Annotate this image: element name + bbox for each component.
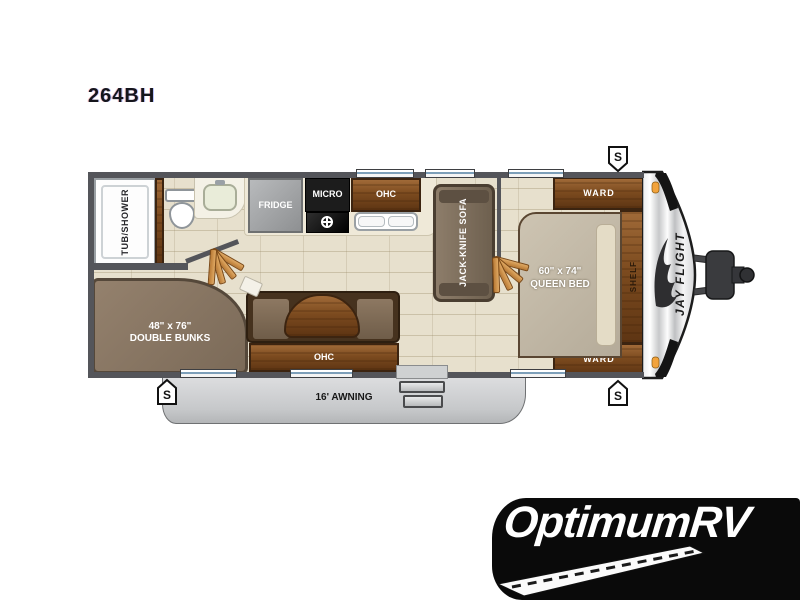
window-bunk (180, 369, 237, 378)
faucet-icon (215, 180, 225, 185)
ward-top-label: WARD (583, 188, 615, 199)
bunks-label: 48" x 76" DOUBLE BUNKS (130, 321, 211, 346)
burner-icon (321, 216, 333, 228)
wardrobe-top: WARD (553, 177, 645, 210)
dealer-logo-text: OptimumRV (501, 498, 796, 548)
svg-text:S: S (163, 388, 171, 402)
svg-text:S: S (614, 389, 622, 403)
road-icon (498, 544, 728, 598)
speaker-badge-top: S (607, 145, 629, 173)
kitchen-ohc-label: OHC (376, 189, 396, 200)
window-dinette (290, 369, 353, 378)
dinette-seat-right (357, 299, 393, 339)
tub-shower-label: TUB/SHOWER (120, 189, 130, 256)
dinette-ohc: OHC (249, 343, 399, 372)
wall-left (88, 172, 94, 378)
fridge: FRIDGE (248, 178, 303, 233)
entry-step-2 (403, 395, 443, 408)
queen-bed-label: 60" x 74" QUEEN BED (520, 266, 600, 291)
micro-label: MICRO (313, 189, 343, 200)
awning-label: 16' AWNING (163, 392, 525, 403)
bedroom-wall (497, 178, 501, 258)
floorplan-image: 264BH TUB/SHOWER FRIDGE MICRO OHC JACK-K… (0, 0, 800, 600)
kitchen-ohc: OHC (351, 178, 421, 212)
bath-sink-icon (203, 184, 237, 211)
kitchen-sink-icon (354, 212, 418, 231)
dealer-logo: OptimumRV (488, 490, 800, 600)
bath-trim (155, 178, 164, 266)
hitch-icon (694, 246, 756, 304)
double-bunks: 48" x 76" DOUBLE BUNKS (92, 278, 248, 374)
fridge-label: FRIDGE (258, 200, 292, 211)
microwave: MICRO (305, 178, 350, 212)
speaker-badge-left: S (156, 378, 178, 406)
awning: 16' AWNING (162, 378, 526, 424)
entry-step-1 (399, 381, 445, 393)
model-number: 264BH (88, 85, 155, 108)
svg-text:S: S (614, 150, 622, 164)
marker-light-icon (652, 357, 659, 368)
window-bed-top (508, 169, 564, 178)
window-kitchen (356, 169, 414, 178)
tub-shower: TUB/SHOWER (94, 178, 156, 266)
window-bed-bottom (510, 369, 566, 378)
entry-platform (396, 365, 448, 379)
dinette-ohc-label: OHC (314, 352, 334, 363)
shelf-label: SHELF (629, 261, 638, 292)
queen-bed: 60" x 74" QUEEN BED (518, 212, 622, 358)
marker-light-icon (652, 182, 659, 193)
window-sofa (425, 169, 475, 178)
bathroom-wall (88, 263, 188, 270)
range-cooktop (306, 212, 349, 233)
speaker-badge-right: S (607, 379, 629, 407)
jayflight-logo: JAY FLIGHT (673, 232, 687, 316)
jack-knife-sofa: JACK-KNIFE SOFA (433, 184, 495, 302)
sofa-label: JACK-KNIFE SOFA (458, 198, 469, 287)
